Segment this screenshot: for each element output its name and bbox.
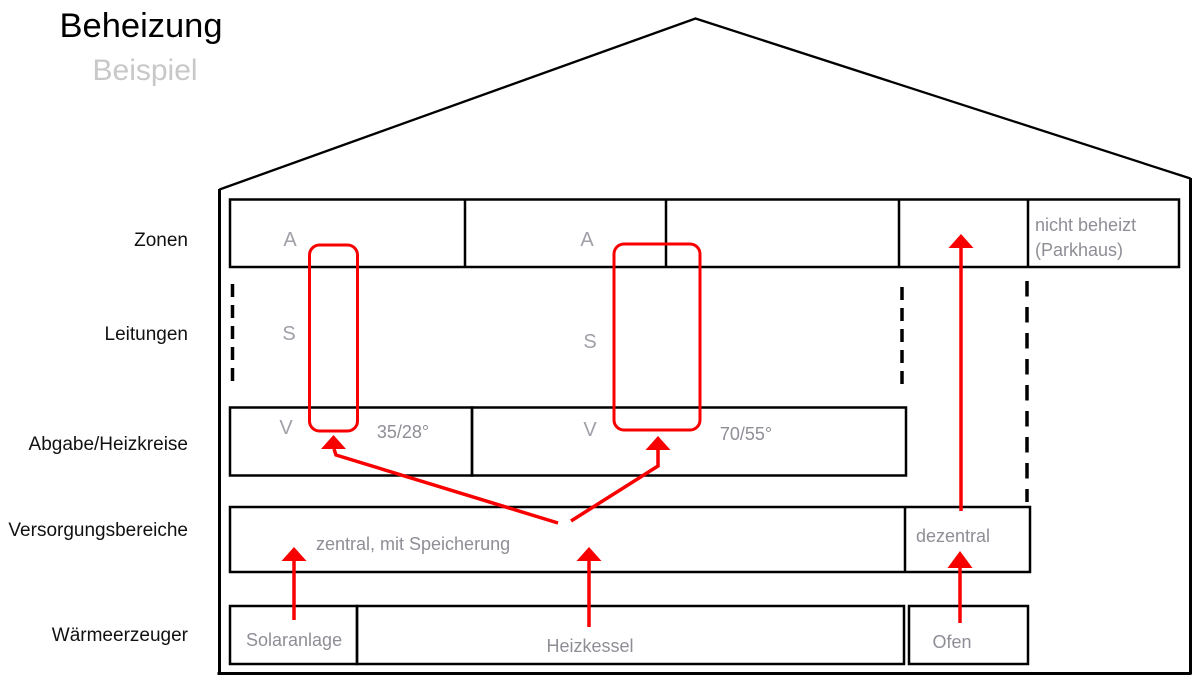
svg-text:nicht beheizt: nicht beheizt	[1035, 215, 1136, 235]
svg-text:35/28°: 35/28°	[377, 422, 429, 442]
svg-text:S: S	[282, 323, 295, 345]
svg-text:zentral, mit Speicherung: zentral, mit Speicherung	[316, 534, 510, 554]
svg-text:V: V	[583, 419, 597, 441]
svg-text:Abgabe/Heizkreise: Abgabe/Heizkreise	[29, 434, 188, 455]
svg-text:Wärmeerzeuger: Wärmeerzeuger	[52, 625, 189, 646]
svg-text:Zonen: Zonen	[134, 230, 188, 251]
svg-text:Versorgungsbereiche: Versorgungsbereiche	[8, 520, 188, 541]
svg-text:S: S	[583, 331, 596, 353]
svg-text:A: A	[283, 229, 297, 251]
svg-text:Ofen: Ofen	[932, 632, 971, 652]
svg-text:V: V	[279, 417, 293, 439]
svg-text:Solaranlage: Solaranlage	[246, 630, 342, 650]
svg-text:A: A	[580, 229, 594, 251]
svg-text:Beheizung: Beheizung	[60, 7, 223, 45]
svg-text:dezentral: dezentral	[916, 526, 990, 546]
svg-text:Leitungen: Leitungen	[105, 324, 188, 345]
svg-text:(Parkhaus): (Parkhaus)	[1035, 240, 1123, 260]
svg-text:Heizkessel: Heizkessel	[546, 636, 633, 656]
svg-text:Beispiel: Beispiel	[93, 54, 198, 87]
svg-text:70/55°: 70/55°	[720, 424, 772, 444]
